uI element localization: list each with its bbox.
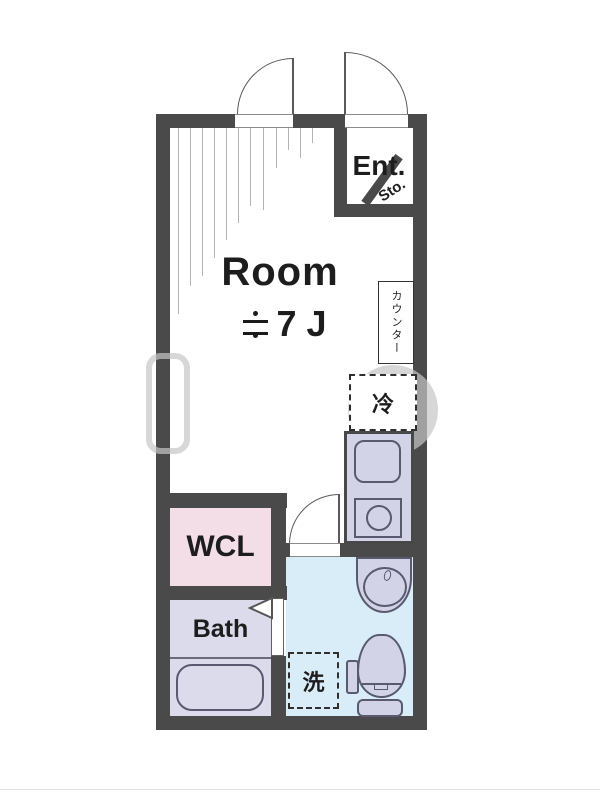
ceiling-hatch-line <box>250 128 251 206</box>
kitchen-sink <box>354 440 401 483</box>
entrance-door-opening-left <box>235 114 293 128</box>
room-size-label: 7 J <box>195 303 375 345</box>
stove-burner <box>366 505 392 531</box>
entrance-door-leaf-right <box>344 52 346 114</box>
ceiling-hatch-line <box>276 128 277 168</box>
bathroom-door-arc <box>289 494 339 544</box>
entrance-door-opening-right <box>345 114 408 128</box>
refrigerator-box: 冷 <box>349 374 417 431</box>
watermark-bar <box>146 353 190 454</box>
washing-machine-label: 洗 <box>302 665 324 697</box>
wall <box>293 114 345 128</box>
ceiling-hatch-line <box>238 128 239 223</box>
ceiling-hatch-line <box>288 128 289 150</box>
toilet-bowl <box>357 634 406 698</box>
toilet-control-panel <box>346 660 359 694</box>
wall <box>156 114 235 128</box>
wall <box>156 716 427 730</box>
bathroom-door-leaf <box>338 494 340 544</box>
ceiling-hatch-line <box>214 128 215 258</box>
wall-bathroom-top-left <box>271 543 290 557</box>
floor-plan: カウンター 冷 洗 Room 7 J Ent. Sto. WCL Bath <box>0 0 600 800</box>
entrance-door-leaf-left <box>292 58 294 114</box>
bath-divider-line <box>170 657 271 659</box>
refrigerator-label: 冷 <box>372 387 394 419</box>
wall <box>408 114 427 128</box>
entrance-door-arc-left <box>237 58 293 114</box>
ceiling-hatch-line <box>178 128 179 314</box>
bathroom-door-opening <box>290 543 340 557</box>
toilet-tank <box>357 699 403 717</box>
room-label: Room <box>200 250 360 295</box>
bathtub <box>176 664 264 711</box>
ceiling-hatch-line <box>312 128 313 143</box>
wall-bath-bathroom <box>271 656 286 716</box>
wall-bathroom-top-right <box>340 543 413 557</box>
bath-label: Bath <box>170 615 271 644</box>
entrance-door-arc-right <box>345 52 408 114</box>
approx-equal-icon <box>243 311 268 338</box>
toilet-seat-notch <box>374 685 388 690</box>
washing-machine-box: 洗 <box>288 652 339 709</box>
ceiling-hatch-line <box>300 128 301 158</box>
counter-box: カウンター <box>378 281 414 364</box>
ceiling-hatch-line <box>190 128 191 286</box>
wall-wcl-top <box>156 493 287 508</box>
approx-equal-bars <box>243 320 268 335</box>
ceiling-hatch-line <box>226 128 227 240</box>
counter-label: カウンター <box>388 290 404 355</box>
ceiling-hatch-line <box>263 128 264 210</box>
room-size-value: 7 J <box>276 303 326 344</box>
wcl-label: WCL <box>170 530 271 564</box>
page-divider-line <box>0 789 600 790</box>
